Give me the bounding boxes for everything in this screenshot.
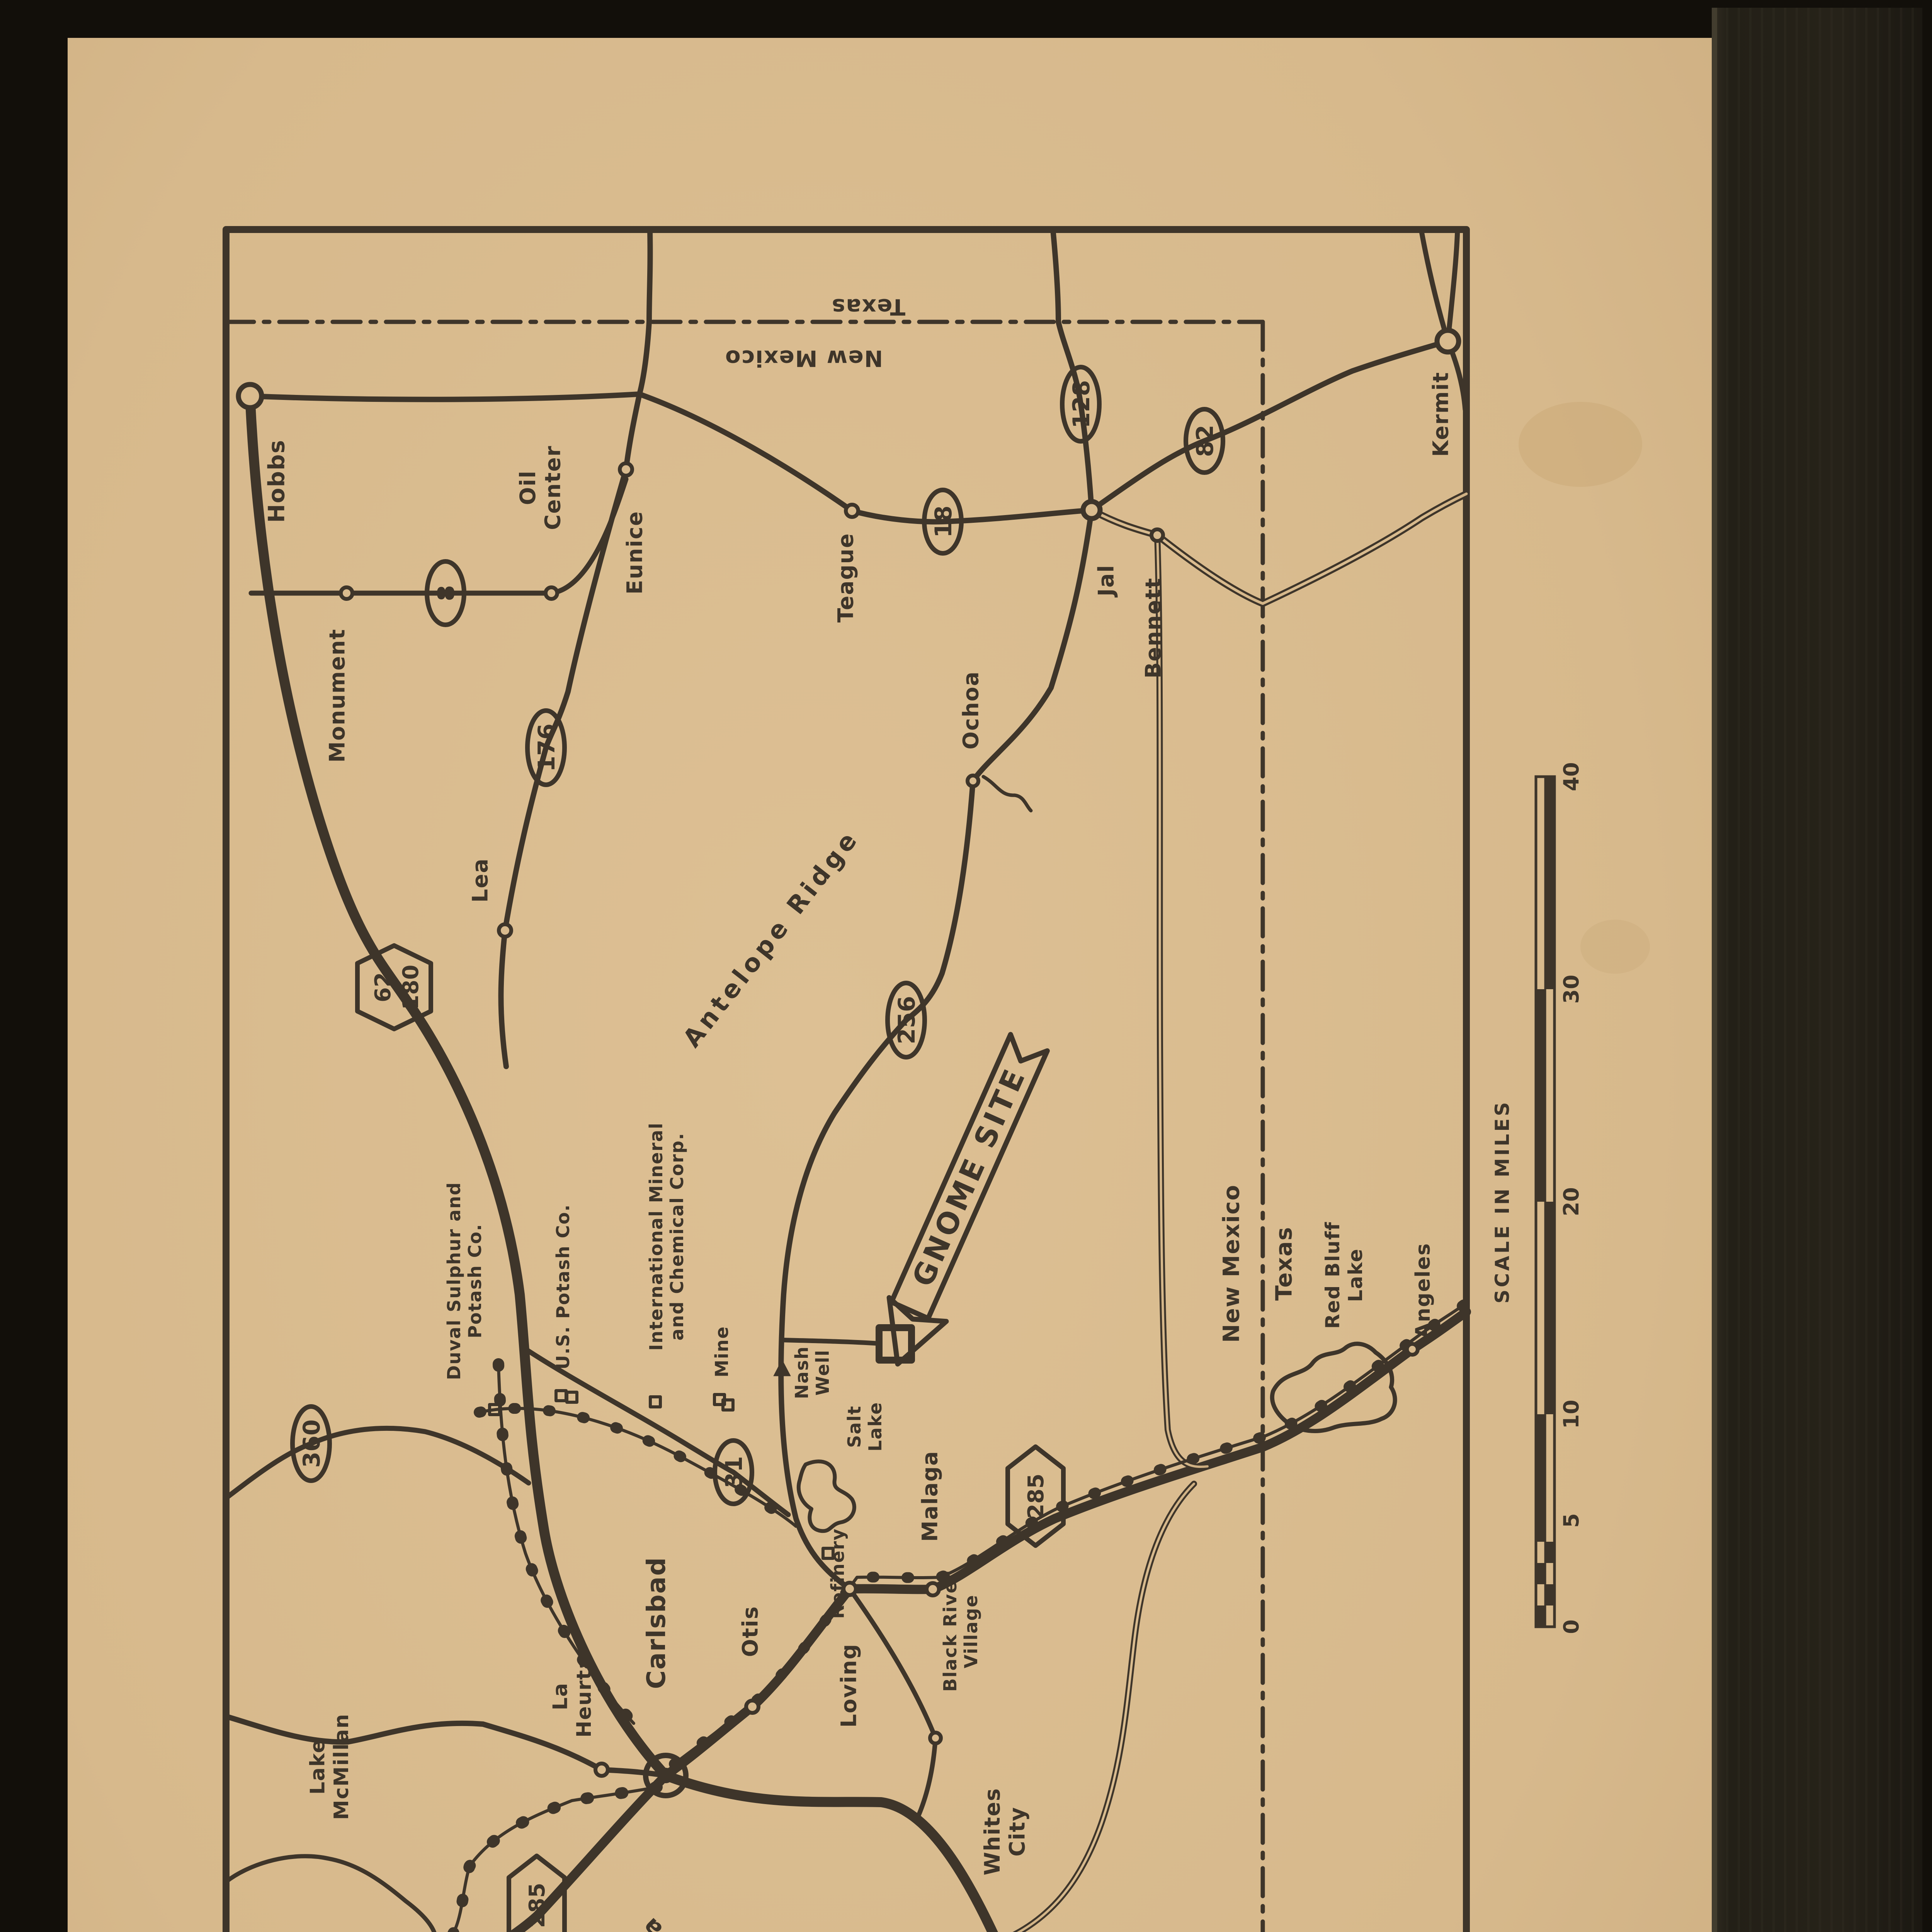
svg-text:Mine: Mine: [711, 1326, 732, 1378]
svg-text:Well: Well: [812, 1349, 833, 1396]
svg-text:International Mineral: International Mineral: [646, 1122, 667, 1350]
svg-text:Center: Center: [541, 445, 565, 530]
map-label-bennett: Bennett: [1141, 577, 1165, 678]
map-label-jal: Jal: [1094, 565, 1118, 598]
town-symbol-lea: [499, 924, 511, 937]
svg-text:360: 360: [298, 1419, 325, 1468]
map-label-kermit: Kermit: [1428, 372, 1453, 457]
town-symbol-la-heurta: [595, 1764, 608, 1776]
svg-text:Bennett: Bennett: [1141, 577, 1165, 678]
map-label-texas-east: Texas: [1270, 1226, 1297, 1301]
scanned-map-page: 81761812882256360316218028528562180 Hobb…: [0, 0, 1932, 1932]
svg-text:Teague: Teague: [833, 533, 858, 622]
scale-bar-checker-block: [1536, 1520, 1545, 1542]
map-label-mine: Mine: [711, 1326, 732, 1378]
scale-bar-segment: [1536, 1414, 1545, 1520]
map-label-malaga: Malaga: [917, 1451, 942, 1542]
svg-text:31: 31: [721, 1456, 748, 1488]
scale-bar-checker-block: [1545, 1584, 1554, 1605]
map-label-eunice: Eunice: [622, 511, 647, 595]
svg-text:Oil: Oil: [515, 470, 540, 505]
map-label-texas-north: Texas: [831, 294, 905, 320]
map-label-ochoa: Ochoa: [958, 671, 983, 749]
svg-text:Village: Village: [961, 1594, 981, 1668]
town-symbol-hobbs: [238, 384, 262, 408]
map-label-new-mexico-east: New Mexico: [1218, 1184, 1244, 1343]
scale-bar-segment: [1545, 777, 1554, 989]
svg-text:Lea: Lea: [468, 858, 492, 902]
svg-text:Lake: Lake: [306, 1739, 330, 1795]
scale-bar-label: SCALE IN MILES: [1491, 1100, 1514, 1303]
paper-stain: [1519, 402, 1642, 487]
svg-text:Carlsbad: Carlsbad: [641, 1557, 671, 1689]
svg-text:Otis: Otis: [738, 1606, 762, 1657]
svg-text:Heurta: Heurta: [573, 1655, 596, 1737]
scale-bar-number-20: 20: [1559, 1187, 1583, 1216]
svg-text:Malaga: Malaga: [917, 1451, 942, 1542]
svg-text:Salt: Salt: [844, 1405, 865, 1448]
book-binding-cloth: [1712, 8, 1922, 1932]
svg-text:Nash: Nash: [791, 1346, 812, 1399]
svg-text:Potash Co.: Potash Co.: [464, 1223, 485, 1338]
svg-text:Black River: Black River: [940, 1571, 961, 1692]
town-symbol-bennett: [1151, 529, 1163, 541]
svg-text:8: 8: [433, 585, 460, 601]
svg-text:New Mexico: New Mexico: [724, 345, 883, 372]
svg-text:128: 128: [1068, 380, 1095, 428]
svg-text:Lake: Lake: [1344, 1248, 1367, 1302]
scale-bar-number-0: 0: [1559, 1619, 1583, 1634]
map-label-refinery: Refinery: [827, 1528, 848, 1619]
map-label-monument: Monument: [325, 629, 349, 763]
scale-bar-number-40: 40: [1559, 762, 1583, 791]
svg-text:Lake: Lake: [865, 1402, 886, 1452]
svg-text:180: 180: [398, 965, 423, 1010]
svg-text:Kermit: Kermit: [1428, 372, 1453, 457]
svg-text:New Mexico: New Mexico: [1218, 1184, 1244, 1343]
map-label-otis: Otis: [738, 1606, 762, 1657]
svg-text:176: 176: [533, 723, 560, 772]
svg-text:Red Bluff: Red Bluff: [1321, 1221, 1344, 1329]
town-symbol-ochoa: [968, 776, 978, 786]
scale-bar-number-30: 30: [1559, 975, 1583, 1003]
svg-text:82: 82: [1192, 425, 1219, 457]
svg-text:18: 18: [930, 505, 957, 538]
scale-bar-checker-block: [1545, 1542, 1554, 1563]
svg-text:Whites: Whites: [980, 1787, 1005, 1875]
map-label-loving: Loving: [836, 1643, 861, 1728]
svg-text:256: 256: [893, 996, 920, 1044]
scale-bar-segment: [1545, 1202, 1554, 1414]
map-label-teague: Teague: [833, 533, 858, 622]
town-symbol-jal: [1083, 502, 1100, 519]
svg-text:Angeles: Angeles: [1412, 1243, 1435, 1338]
svg-text:62: 62: [371, 972, 396, 1002]
svg-text:Texas: Texas: [1270, 1226, 1297, 1301]
svg-text:Ochoa: Ochoa: [958, 671, 983, 749]
scale-bar-checker-block: [1536, 1605, 1545, 1627]
svg-text:and Chemical Corp.: and Chemical Corp.: [667, 1133, 687, 1341]
town-symbol-otis: [746, 1701, 759, 1713]
svg-text:U.S. Potash Co.: U.S. Potash Co.: [553, 1204, 573, 1370]
svg-text:Refinery: Refinery: [827, 1528, 848, 1619]
svg-text:Texas: Texas: [831, 294, 905, 320]
map-label-hobbs: Hobbs: [263, 439, 289, 523]
svg-text:Duval Sulphur and: Duval Sulphur and: [444, 1182, 464, 1380]
town-symbol-angeles: [1407, 1344, 1418, 1355]
svg-text:Jal: Jal: [1094, 565, 1118, 598]
svg-text:285: 285: [1024, 1474, 1049, 1519]
town-symbol-monument: [341, 587, 352, 599]
map-label-nash-well: NashWell: [791, 1346, 833, 1399]
scale-bar-number-5: 5: [1559, 1513, 1583, 1528]
map-label-lea: Lea: [468, 858, 492, 902]
svg-text:Hobbs: Hobbs: [263, 439, 289, 523]
town-symbol-eunice: [620, 463, 632, 476]
map-label-carlsbad: Carlsbad: [641, 1557, 671, 1689]
svg-text:La: La: [549, 1682, 572, 1710]
svg-text:Eunice: Eunice: [622, 511, 647, 595]
svg-text:Monument: Monument: [325, 629, 349, 763]
town-symbol-malaga: [927, 1583, 939, 1595]
map-label-salt-lake: SaltLake: [844, 1402, 886, 1452]
cloth-worn-edge: [1712, 8, 1717, 1932]
scale-bar-number-10: 10: [1559, 1400, 1583, 1429]
map-label-new-mexico-north: New Mexico: [724, 345, 883, 372]
town-symbol-oil-center: [546, 587, 557, 599]
map-label-us-potash: U.S. Potash Co.: [553, 1204, 573, 1370]
scale-bar-segment: [1536, 989, 1545, 1202]
paper-stain: [1580, 920, 1650, 974]
town-symbol-teague: [846, 505, 858, 517]
svg-text:285: 285: [525, 1883, 550, 1928]
town-symbol-black-river-village: [930, 1733, 941, 1743]
svg-text:Loving: Loving: [836, 1643, 861, 1728]
svg-text:McMillan: McMillan: [330, 1713, 353, 1820]
scale-bar-checker-block: [1536, 1563, 1545, 1584]
town-symbol-kermit: [1437, 330, 1459, 352]
map-label-angeles: Angeles: [1412, 1243, 1435, 1338]
map-label-intl-mineral: International Mineraland Chemical Corp.: [646, 1122, 687, 1350]
svg-text:City: City: [1005, 1806, 1030, 1856]
